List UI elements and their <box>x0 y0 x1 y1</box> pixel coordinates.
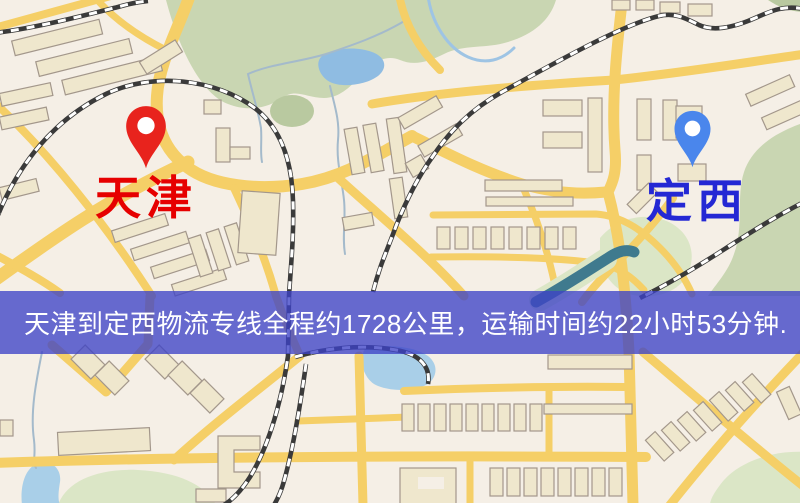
destination-city-label: 定西 <box>646 179 748 225</box>
origin-city-label: 天津 <box>95 176 197 222</box>
origin-pin-icon[interactable] <box>120 101 172 170</box>
route-info-text: 天津到定西物流专线全程约1728公里，运输时间约22小时53分钟. <box>0 304 787 341</box>
logistics-route-map: 天津 定西 天津到定西物流专线全程约1728公里，运输时间约22小时53分钟. <box>0 0 800 503</box>
map-canvas <box>0 0 800 503</box>
route-info-banner: 天津到定西物流专线全程约1728公里，运输时间约22小时53分钟. <box>0 291 800 354</box>
destination-pin-icon[interactable] <box>669 106 716 169</box>
